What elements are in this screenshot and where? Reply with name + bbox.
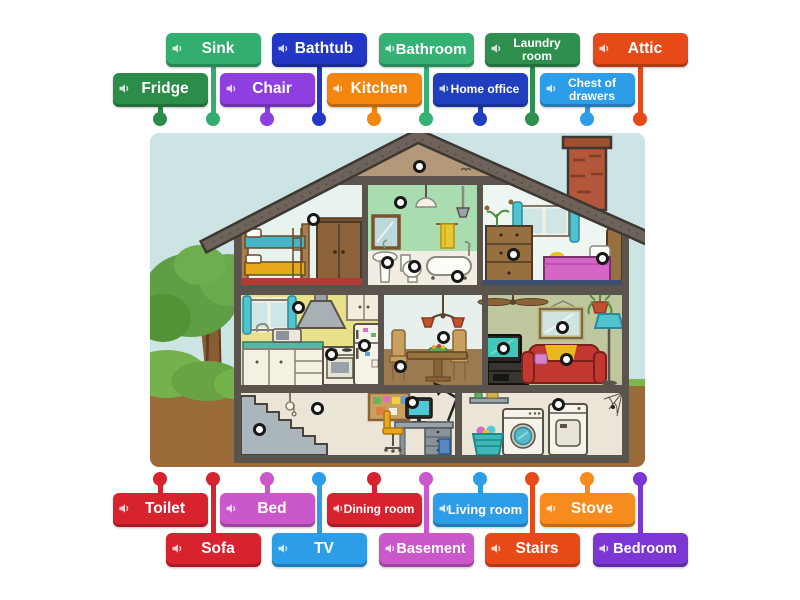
speaker-icon[interactable] xyxy=(491,543,502,554)
label-chest-of-drawers[interactable]: Chest of drawers xyxy=(540,73,635,107)
label-dot-bed xyxy=(260,472,274,486)
label-stem-basement xyxy=(424,479,429,535)
label-dot-fridge xyxy=(153,112,167,126)
speaker-icon[interactable] xyxy=(333,503,344,514)
label-attic[interactable]: Attic xyxy=(593,33,688,67)
speaker-icon[interactable] xyxy=(226,503,237,514)
label-stove[interactable]: Stove xyxy=(540,493,635,527)
label-laundry-room[interactable]: Laundry room xyxy=(485,33,580,67)
pin-dining-chandelier[interactable] xyxy=(437,331,450,344)
pin-bed[interactable] xyxy=(596,252,609,265)
speaker-icon[interactable] xyxy=(546,83,557,94)
speaker-icon[interactable] xyxy=(172,543,183,554)
pin-toilet[interactable] xyxy=(408,260,421,273)
speaker-icon[interactable] xyxy=(599,543,610,554)
label-stem-sofa xyxy=(211,479,216,535)
label-stem-tv xyxy=(317,479,322,535)
speaker-icon[interactable] xyxy=(599,43,610,54)
speaker-icon[interactable] xyxy=(119,83,130,94)
label-bedroom[interactable]: Bedroom xyxy=(593,533,688,567)
pin-kitchen-wall[interactable] xyxy=(292,301,305,314)
label-dot-dining-room xyxy=(367,472,381,486)
label-dot-kitchen xyxy=(367,112,381,126)
label-bathroom[interactable]: Bathroom xyxy=(379,33,474,67)
label-fridge[interactable]: Fridge xyxy=(113,73,208,107)
pin-bathroom-wall[interactable] xyxy=(394,196,407,209)
pin-chest-of-drawers[interactable] xyxy=(507,248,520,261)
label-toilet[interactable]: Toilet xyxy=(113,493,208,527)
label-dot-chest-of-drawers xyxy=(580,112,594,126)
pin-tv[interactable] xyxy=(497,342,510,355)
label-home-office[interactable]: Home office xyxy=(433,73,528,107)
speaker-icon[interactable] xyxy=(119,503,130,514)
pin-office-desk[interactable] xyxy=(406,396,419,409)
speaker-icon[interactable] xyxy=(439,503,450,514)
speaker-icon[interactable] xyxy=(385,543,396,554)
pin-stove[interactable] xyxy=(325,348,338,361)
label-sofa[interactable]: Sofa xyxy=(166,533,261,567)
label-bathtub[interactable]: Bathtub xyxy=(272,33,367,67)
pin-attic[interactable] xyxy=(413,160,426,173)
pin-bathroom-sink[interactable] xyxy=(381,256,394,269)
label-sink[interactable]: Sink xyxy=(166,33,261,67)
label-dot-sofa xyxy=(206,472,220,486)
speaker-icon[interactable] xyxy=(491,43,502,54)
label-stairs[interactable]: Stairs xyxy=(485,533,580,567)
label-dot-laundry-room xyxy=(525,112,539,126)
speaker-icon[interactable] xyxy=(226,83,237,94)
label-dot-toilet xyxy=(153,472,167,486)
label-dining-room[interactable]: Dining room xyxy=(327,493,422,527)
speaker-icon[interactable] xyxy=(385,43,396,54)
label-chair[interactable]: Chair xyxy=(220,73,315,107)
speaker-icon[interactable] xyxy=(439,83,450,94)
label-tv[interactable]: TV xyxy=(272,533,367,567)
label-dot-basement xyxy=(419,472,433,486)
label-dot-bathtub xyxy=(312,112,326,126)
pin-dining-chair[interactable] xyxy=(394,360,407,373)
pin-basement-wall[interactable] xyxy=(311,402,324,415)
pin-stairs[interactable] xyxy=(253,423,266,436)
speaker-icon[interactable] xyxy=(546,503,557,514)
label-dot-living-room xyxy=(473,472,487,486)
label-dot-stove xyxy=(580,472,594,486)
speaker-icon[interactable] xyxy=(278,543,289,554)
label-dot-tv xyxy=(312,472,326,486)
label-stem-bedroom xyxy=(638,479,643,535)
speaker-icon[interactable] xyxy=(172,43,183,54)
speaker-icon[interactable] xyxy=(333,83,344,94)
pin-sofa[interactable] xyxy=(560,353,573,366)
pin-laundry-room[interactable] xyxy=(552,398,565,411)
label-dot-bathroom xyxy=(419,112,433,126)
label-dot-attic xyxy=(633,112,647,126)
label-dot-bedroom xyxy=(633,472,647,486)
label-bed[interactable]: Bed xyxy=(220,493,315,527)
pin-bathtub[interactable] xyxy=(451,270,464,283)
label-dot-stairs xyxy=(525,472,539,486)
label-dot-home-office xyxy=(473,112,487,126)
label-living-room[interactable]: Living room xyxy=(433,493,528,527)
pin-living-room-mirror[interactable] xyxy=(556,321,569,334)
label-basement[interactable]: Basement xyxy=(379,533,474,567)
pin-fridge[interactable] xyxy=(358,339,371,352)
labels-layer: SinkBathtubBathroomLaundry roomAtticFrid… xyxy=(0,0,800,600)
pin-kids-bedroom[interactable] xyxy=(307,213,320,226)
label-dot-chair xyxy=(260,112,274,126)
label-stem-stairs xyxy=(530,479,535,535)
speaker-icon[interactable] xyxy=(278,43,289,54)
label-kitchen[interactable]: Kitchen xyxy=(327,73,422,107)
label-dot-sink xyxy=(206,112,220,126)
